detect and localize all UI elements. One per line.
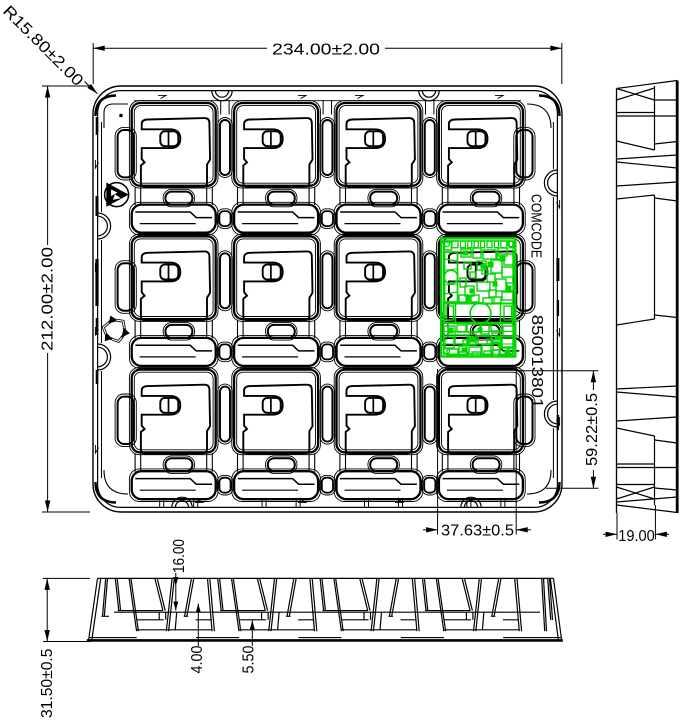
svg-text:59.22±0.5: 59.22±0.5	[584, 393, 601, 466]
svg-text:4.00: 4.00	[189, 645, 206, 673]
svg-text:37.63±0.5: 37.63±0.5	[441, 522, 514, 539]
svg-text:234.00±2.00: 234.00±2.00	[272, 41, 380, 58]
svg-text:16.00: 16.00	[171, 539, 188, 573]
svg-text:COMCODE: COMCODE	[527, 194, 544, 258]
svg-text:19.00: 19.00	[618, 528, 655, 545]
svg-text:5.50: 5.50	[241, 645, 258, 673]
svg-text:850013801: 850013801	[528, 315, 545, 409]
svg-text:212.00±2.00: 212.00±2.00	[39, 247, 56, 351]
svg-text:31.50±0.5: 31.50±0.5	[39, 648, 56, 718]
